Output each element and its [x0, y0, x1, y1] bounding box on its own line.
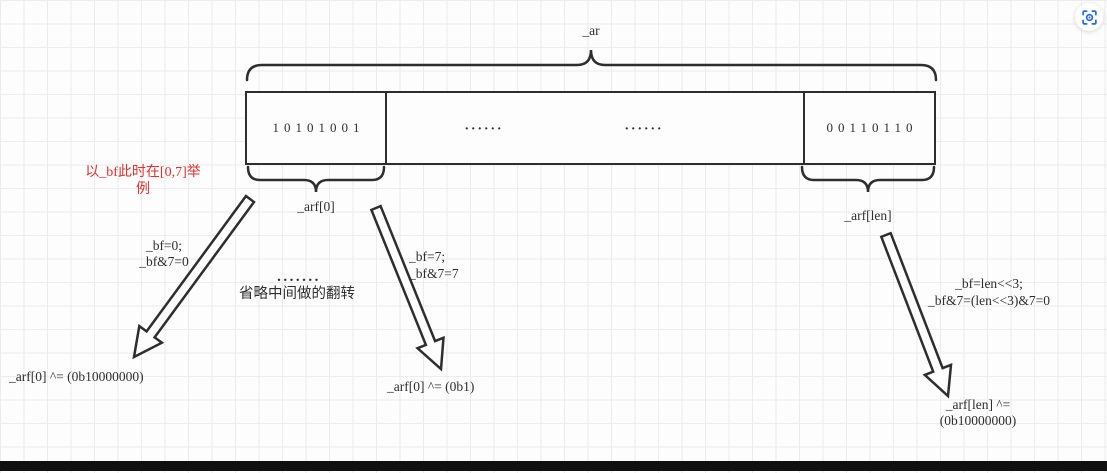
- byte-cell-middle: ...... ......: [385, 93, 805, 163]
- last-byte-bits: 00110110: [826, 120, 917, 136]
- skip-middle-ellipsis: .......: [248, 270, 350, 285]
- middle-case-expr2: _bf&7=7: [409, 265, 459, 282]
- middle-ellipsis-right: ......: [625, 118, 664, 134]
- skip-middle-note: 省略中间做的翻转: [213, 287, 381, 302]
- last-case-expressions: _bf=len<<3; _bf&7=(len<<3)&7=0: [913, 275, 1065, 309]
- middle-case-expressions: _bf=7; _bf&7=7: [409, 248, 459, 282]
- byte-cell-first: 10101001: [247, 93, 385, 163]
- last-case-result: _arf[len] ^= (0b10000000): [917, 397, 1039, 428]
- last-byte-label: _arf[len]: [818, 208, 918, 223]
- top-brace: [247, 50, 936, 80]
- first-byte-bits: 10101001: [273, 120, 365, 136]
- example-note: 以_bf此时在[0,7]举 例: [62, 164, 224, 198]
- arrow-first-case: [134, 196, 254, 357]
- last-cell-brace: [802, 167, 934, 192]
- example-note-line1: 以_bf此时在[0,7]举: [62, 164, 224, 181]
- first-cell-brace: [248, 167, 384, 192]
- arrow-middle-case: [371, 206, 443, 369]
- middle-case-result: _arf[0] ^= (0b1): [387, 379, 474, 394]
- first-case-expr2: _bf&7=0: [110, 254, 218, 270]
- first-case-result: _arf[0] ^= (0b10000000): [9, 369, 144, 384]
- middle-case-expr1: _bf=7;: [409, 248, 459, 265]
- last-case-result-line2: (0b10000000): [917, 413, 1039, 429]
- byte-array-box: 10101001 ...... ...... 00110110: [245, 91, 936, 165]
- last-case-expr1: _bf=len<<3;: [913, 275, 1065, 292]
- whiteboard-canvas: _ar 10101001 ...... ...... 00110110 _arf…: [0, 0, 1107, 473]
- array-name-label: _ar: [560, 23, 622, 38]
- last-case-expr2: _bf&7=(len<<3)&7=0: [913, 292, 1065, 309]
- byte-cell-last: 00110110: [805, 93, 934, 163]
- scan-ocr-button[interactable]: [1075, 3, 1103, 31]
- first-case-expr1: _bf=0;: [110, 238, 218, 254]
- example-note-line2: 例: [62, 181, 224, 198]
- scan-ocr-icon: [1081, 9, 1098, 26]
- bottom-window-bar: [0, 461, 1107, 471]
- first-byte-label: _arf[0]: [266, 199, 366, 214]
- first-case-expressions: _bf=0; _bf&7=0: [110, 238, 218, 270]
- last-case-result-line1: _arf[len] ^=: [917, 397, 1039, 413]
- arrow-last-case: [881, 233, 951, 396]
- middle-ellipsis-left: ......: [465, 118, 504, 134]
